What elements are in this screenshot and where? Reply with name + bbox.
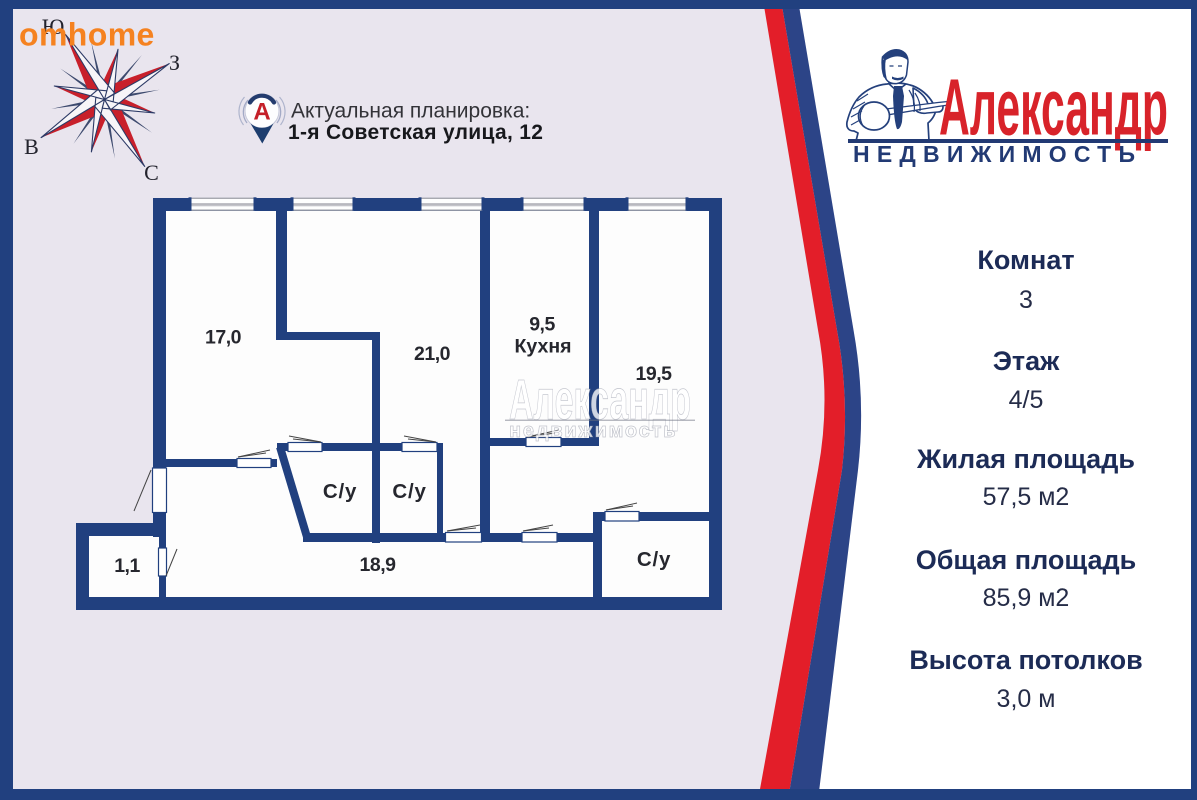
svg-text:Кухня: Кухня	[515, 336, 572, 358]
svg-text:omhome: omhome	[19, 17, 155, 53]
svg-text:1-я Советская улица, 12: 1-я Советская улица, 12	[288, 121, 543, 144]
svg-text:С/у: С/у	[637, 548, 671, 571]
svg-text:3: 3	[1019, 286, 1033, 314]
svg-text:85,9 м2: 85,9 м2	[983, 584, 1070, 612]
svg-text:Актуальная планировка:: Актуальная планировка:	[291, 100, 530, 123]
svg-text:9,5: 9,5	[529, 314, 555, 336]
svg-text:С: С	[144, 160, 159, 185]
svg-text:С/у: С/у	[392, 480, 426, 503]
svg-text:Александр: Александр	[939, 63, 1168, 152]
svg-text:4/5: 4/5	[1009, 386, 1044, 414]
svg-text:С/у: С/у	[323, 480, 357, 503]
svg-text:19,5: 19,5	[636, 363, 673, 385]
svg-text:3,0 м: 3,0 м	[997, 685, 1056, 713]
svg-text:З: З	[169, 50, 180, 75]
svg-text:Высота потолков: Высота потолков	[909, 645, 1142, 675]
svg-text:Этаж: Этаж	[993, 346, 1060, 376]
svg-text:1,1: 1,1	[114, 555, 140, 577]
svg-text:Жилая площадь: Жилая площадь	[916, 444, 1135, 474]
svg-text:Комнат: Комнат	[977, 245, 1074, 275]
svg-text:17,0: 17,0	[205, 327, 242, 349]
svg-text:21,0: 21,0	[414, 343, 451, 365]
svg-text:18,9: 18,9	[360, 554, 397, 576]
svg-text:недвижимость: недвижимость	[509, 420, 677, 442]
svg-text:Общая площадь: Общая площадь	[916, 545, 1137, 575]
svg-text:А: А	[253, 99, 270, 126]
svg-text:В: В	[24, 134, 39, 159]
svg-text:57,5 м2: 57,5 м2	[983, 483, 1070, 511]
